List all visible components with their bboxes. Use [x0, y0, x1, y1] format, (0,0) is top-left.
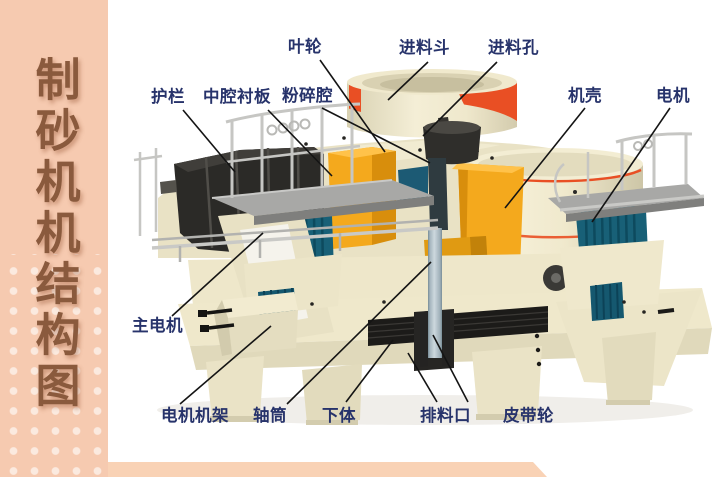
part-label-feed-hopper: 进料斗 — [399, 39, 450, 57]
page-title: 制砂机机结构图 — [32, 56, 77, 413]
part-label-liner-plates: 中腔衬板 — [203, 88, 271, 106]
part-label-crushing-chamber: 粉碎腔 — [282, 87, 333, 105]
far-left-rail — [134, 148, 162, 236]
page: 叶轮 进料斗 进料孔 护栏 中腔衬板 粉碎腔 机壳 电机 主电机 电机机架 轴筒… — [0, 0, 720, 477]
part-label-feed-opening: 进料孔 — [488, 39, 539, 57]
part-label-belt-pulley: 皮带轮 — [503, 407, 554, 425]
part-label-impeller: 叶轮 — [288, 38, 322, 56]
part-label-motor-frame: 电机机架 — [161, 407, 229, 425]
part-label-motor: 电机 — [656, 87, 690, 105]
part-label-guardrail: 护栏 — [151, 88, 185, 106]
part-label-shaft-tube: 轴筒 — [253, 407, 287, 425]
part-label-casing: 机壳 — [568, 87, 602, 105]
part-label-main-motor: 主电机 — [132, 317, 183, 335]
machine-illustration — [0, 0, 720, 477]
sidebar: 制砂机机结构图 — [0, 0, 108, 477]
part-label-discharge-port: 排料口 — [420, 407, 471, 425]
diagram-area: 叶轮 进料斗 进料孔 护栏 中腔衬板 粉碎腔 机壳 电机 主电机 电机机架 轴筒… — [0, 0, 720, 477]
part-label-lower-body: 下体 — [322, 407, 356, 425]
